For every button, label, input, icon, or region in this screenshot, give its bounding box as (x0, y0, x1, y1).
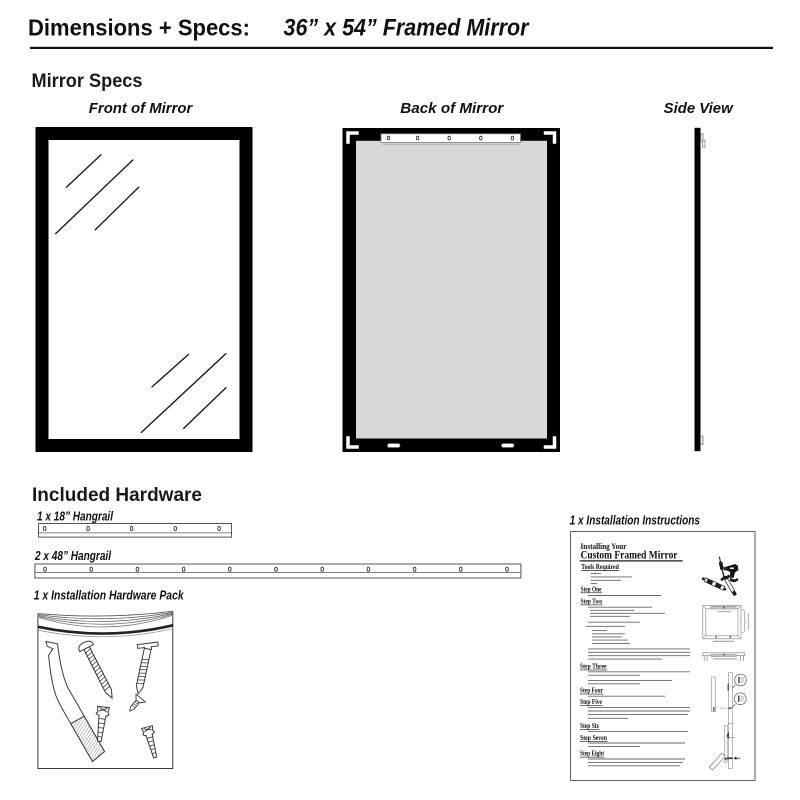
svg-text:36” x 54” Framed Mirror: 36” x 54” Framed Mirror (284, 15, 530, 42)
svg-text:Step Two: Step Two (581, 596, 603, 605)
svg-text:Step Three: Step Three (580, 662, 607, 671)
svg-text:Front of Mirror: Front of Mirror (89, 101, 194, 117)
svg-text:1 x Installation Instructions: 1 x Installation Instructions (570, 513, 700, 528)
svg-text:Back of Mirror: Back of Mirror (400, 101, 504, 117)
svg-text:Mirror Specs: Mirror Specs (32, 71, 143, 92)
svg-text:Custom Framed Mirror: Custom Framed Mirror (581, 547, 679, 561)
svg-text:Included Hardware: Included Hardware (32, 485, 202, 506)
svg-text:1 x Installation Hardware Pack: 1 x Installation Hardware Pack (34, 587, 185, 602)
svg-text:Step Six: Step Six (580, 721, 599, 730)
svg-text:Dimensions + Specs:: Dimensions + Specs: (28, 15, 250, 41)
svg-text:Tools Required: Tools Required (581, 562, 619, 571)
svg-text:Step Five: Step Five (580, 697, 602, 706)
svg-text:Side View: Side View (664, 101, 735, 117)
svg-text:Step Eight: Step Eight (580, 749, 604, 758)
svg-text:Step Seven: Step Seven (580, 733, 608, 742)
svg-text:2 x 48” Hangrail: 2 x 48” Hangrail (34, 548, 111, 563)
svg-text:Step One: Step One (581, 584, 602, 593)
svg-text:1 x 18” Hangrail: 1 x 18” Hangrail (37, 509, 113, 524)
svg-text:Step Four: Step Four (580, 686, 603, 695)
